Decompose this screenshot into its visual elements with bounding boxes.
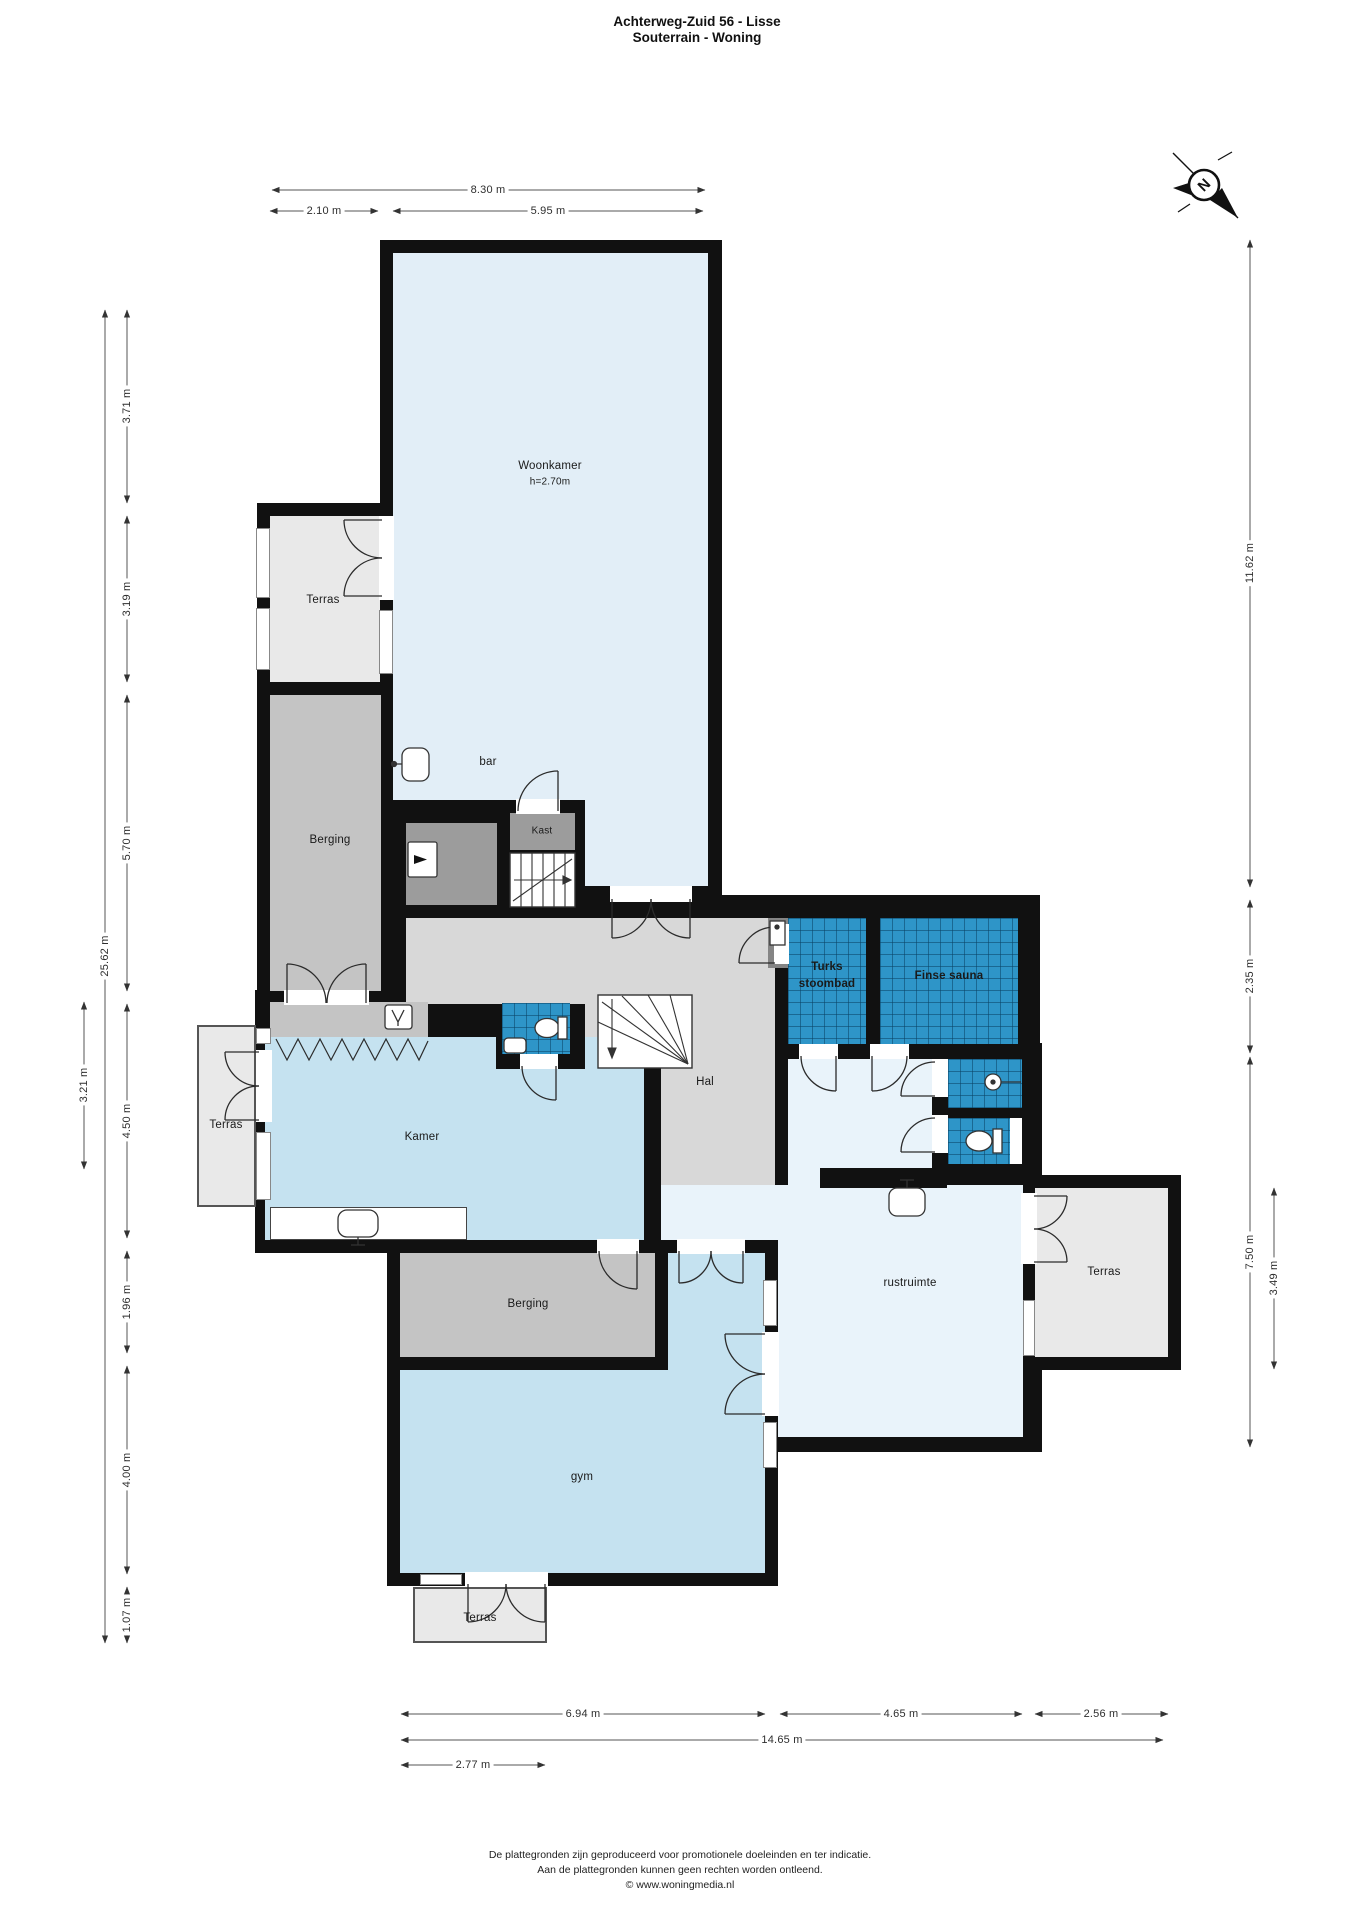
window xyxy=(256,1132,271,1200)
door-opening xyxy=(677,1239,745,1254)
room-fill-hal-c xyxy=(661,1043,775,1185)
dim-left-371: 3.71 m xyxy=(121,386,133,427)
window xyxy=(420,1574,462,1585)
door-opening xyxy=(520,1054,558,1069)
door-opening xyxy=(1021,1193,1037,1264)
room-label-berging-lower: Berging xyxy=(507,1298,548,1310)
dim-left-196: 1.96 m xyxy=(121,1282,133,1323)
door-opening xyxy=(799,1044,838,1059)
room-label-terras-mid: Terras xyxy=(209,1119,242,1131)
room-label-hal: Hal xyxy=(696,1076,714,1088)
wall-patch-sink xyxy=(820,1168,947,1188)
dim-right-750: 7.50 m xyxy=(1244,1232,1256,1273)
window xyxy=(256,1028,271,1044)
room-label-rustruimte: rustruimte xyxy=(883,1277,936,1289)
dim-left-321: 3.21 m xyxy=(78,1065,90,1106)
room-fill-hal-a xyxy=(406,918,775,1004)
room-fill-woonkamer xyxy=(393,253,708,800)
room-fill-wc-2 xyxy=(948,1118,1010,1164)
door-opening xyxy=(256,1050,272,1122)
room-label-terras-bottom: Terras xyxy=(463,1612,496,1624)
room-fill-bar xyxy=(585,800,708,886)
compass-icon: N xyxy=(1160,140,1250,230)
room-label-woonkamer: Woonkamer xyxy=(518,460,582,472)
dim-left-107: 1.07 m xyxy=(121,1595,133,1636)
dim-bottom-694: 6.94 m xyxy=(563,1708,604,1720)
window xyxy=(379,610,393,674)
exterior-patch xyxy=(722,826,790,895)
room-fill-technical xyxy=(406,823,497,905)
door-opening xyxy=(762,1332,779,1416)
dim-bottom-277: 2.77 m xyxy=(453,1759,494,1771)
stairwell-upper xyxy=(510,853,575,907)
door-opening xyxy=(870,1044,909,1059)
door-opening xyxy=(932,1115,948,1153)
floorplan-page: { "title": { "line1": "Achterweg-Zuid 56… xyxy=(0,0,1358,1920)
room-height-note: h=2.70m xyxy=(530,477,571,488)
door-opening xyxy=(597,1239,639,1254)
door-opening xyxy=(516,799,560,814)
window xyxy=(763,1422,777,1468)
dim-left-400: 4.00 m xyxy=(121,1450,133,1491)
room-label-kast: Kast xyxy=(532,826,553,837)
dim-top-210: 2.10 m xyxy=(304,205,345,217)
window xyxy=(1023,1300,1035,1356)
room-label-finse-sauna: Finse sauna xyxy=(915,970,984,982)
window xyxy=(256,608,270,670)
dim-left-2562: 25.62 m xyxy=(99,932,111,979)
room-label-gym: gym xyxy=(571,1471,593,1483)
page-title: Achterweg-Zuid 56 - Lisse Souterrain - W… xyxy=(613,14,780,46)
dim-right-349: 3.49 m xyxy=(1268,1258,1280,1299)
footer-line-1: De plattegronden zijn geproduceerd voor … xyxy=(489,1848,871,1863)
room-fill-rust-a xyxy=(661,1185,1023,1240)
door-opening xyxy=(774,924,789,964)
room-label-terras-upper: Terras xyxy=(306,594,339,606)
room-label-berging-upper: Berging xyxy=(309,834,350,846)
dim-top-830: 8.30 m xyxy=(468,184,509,196)
closet-strip xyxy=(270,1002,428,1037)
footer-credit: © www.woningmedia.nl xyxy=(489,1878,871,1893)
window xyxy=(763,1280,777,1326)
dim-bottom-256: 2.56 m xyxy=(1081,1708,1122,1720)
dim-right-235: 2.35 m xyxy=(1244,956,1256,997)
dim-left-450: 4.50 m xyxy=(121,1101,133,1142)
door-opening xyxy=(284,990,369,1005)
door-opening xyxy=(932,1059,948,1097)
room-label-terras-right: Terras xyxy=(1087,1266,1120,1278)
dim-bottom-1465: 14.65 m xyxy=(758,1734,805,1746)
window xyxy=(256,528,270,598)
dim-left-570: 5.70 m xyxy=(121,823,133,864)
dim-top-595: 5.95 m xyxy=(528,205,569,217)
room-label-turks-2: stoombad xyxy=(799,978,856,990)
dim-left-319: 3.19 m xyxy=(121,579,133,620)
wc2-tank-strip xyxy=(1010,1118,1022,1164)
door-opening xyxy=(465,1572,548,1587)
door-opening xyxy=(610,886,692,902)
title-address: Achterweg-Zuid 56 - Lisse xyxy=(613,14,780,30)
kamer-counter xyxy=(270,1207,467,1240)
room-label-kamer: Kamer xyxy=(405,1131,440,1143)
dim-bottom-465: 4.65 m xyxy=(881,1708,922,1720)
room-fill-terras-mid xyxy=(197,1025,256,1207)
room-fill-shower xyxy=(948,1059,1022,1108)
dim-right-1162: 11.62 m xyxy=(1244,540,1256,586)
room-fill-rust-upper xyxy=(788,1059,932,1185)
room-fill-rust-b xyxy=(778,1240,1023,1437)
footer-line-2: Aan de plattegronden kunnen geen rechten… xyxy=(489,1863,871,1878)
footer-disclaimer: De plattegronden zijn geproduceerd voor … xyxy=(489,1848,871,1894)
title-floor: Souterrain - Woning xyxy=(613,30,780,46)
room-label-bar: bar xyxy=(479,756,496,768)
room-label-turks-1: Turks xyxy=(811,961,842,973)
room-fill-wc-1 xyxy=(502,1003,570,1054)
door-opening xyxy=(379,516,394,600)
